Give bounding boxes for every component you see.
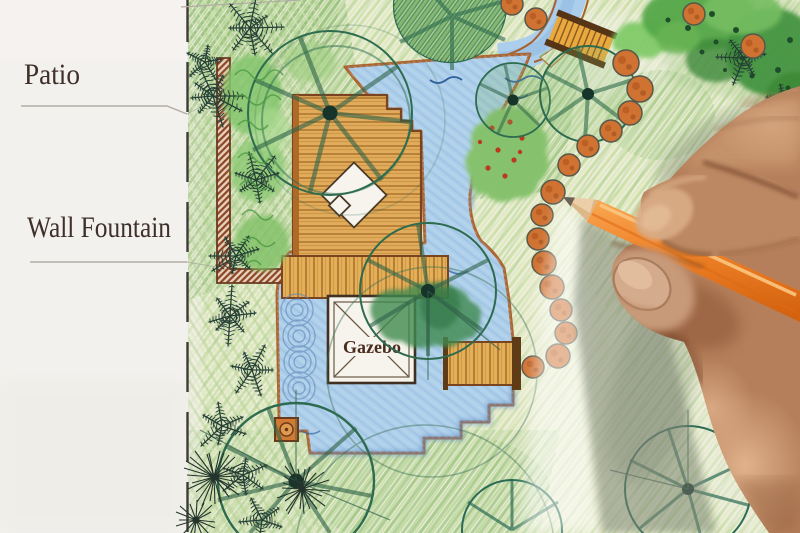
svg-text:Wall Fountain: Wall Fountain bbox=[27, 211, 171, 244]
svg-text:Patio: Patio bbox=[24, 58, 80, 91]
